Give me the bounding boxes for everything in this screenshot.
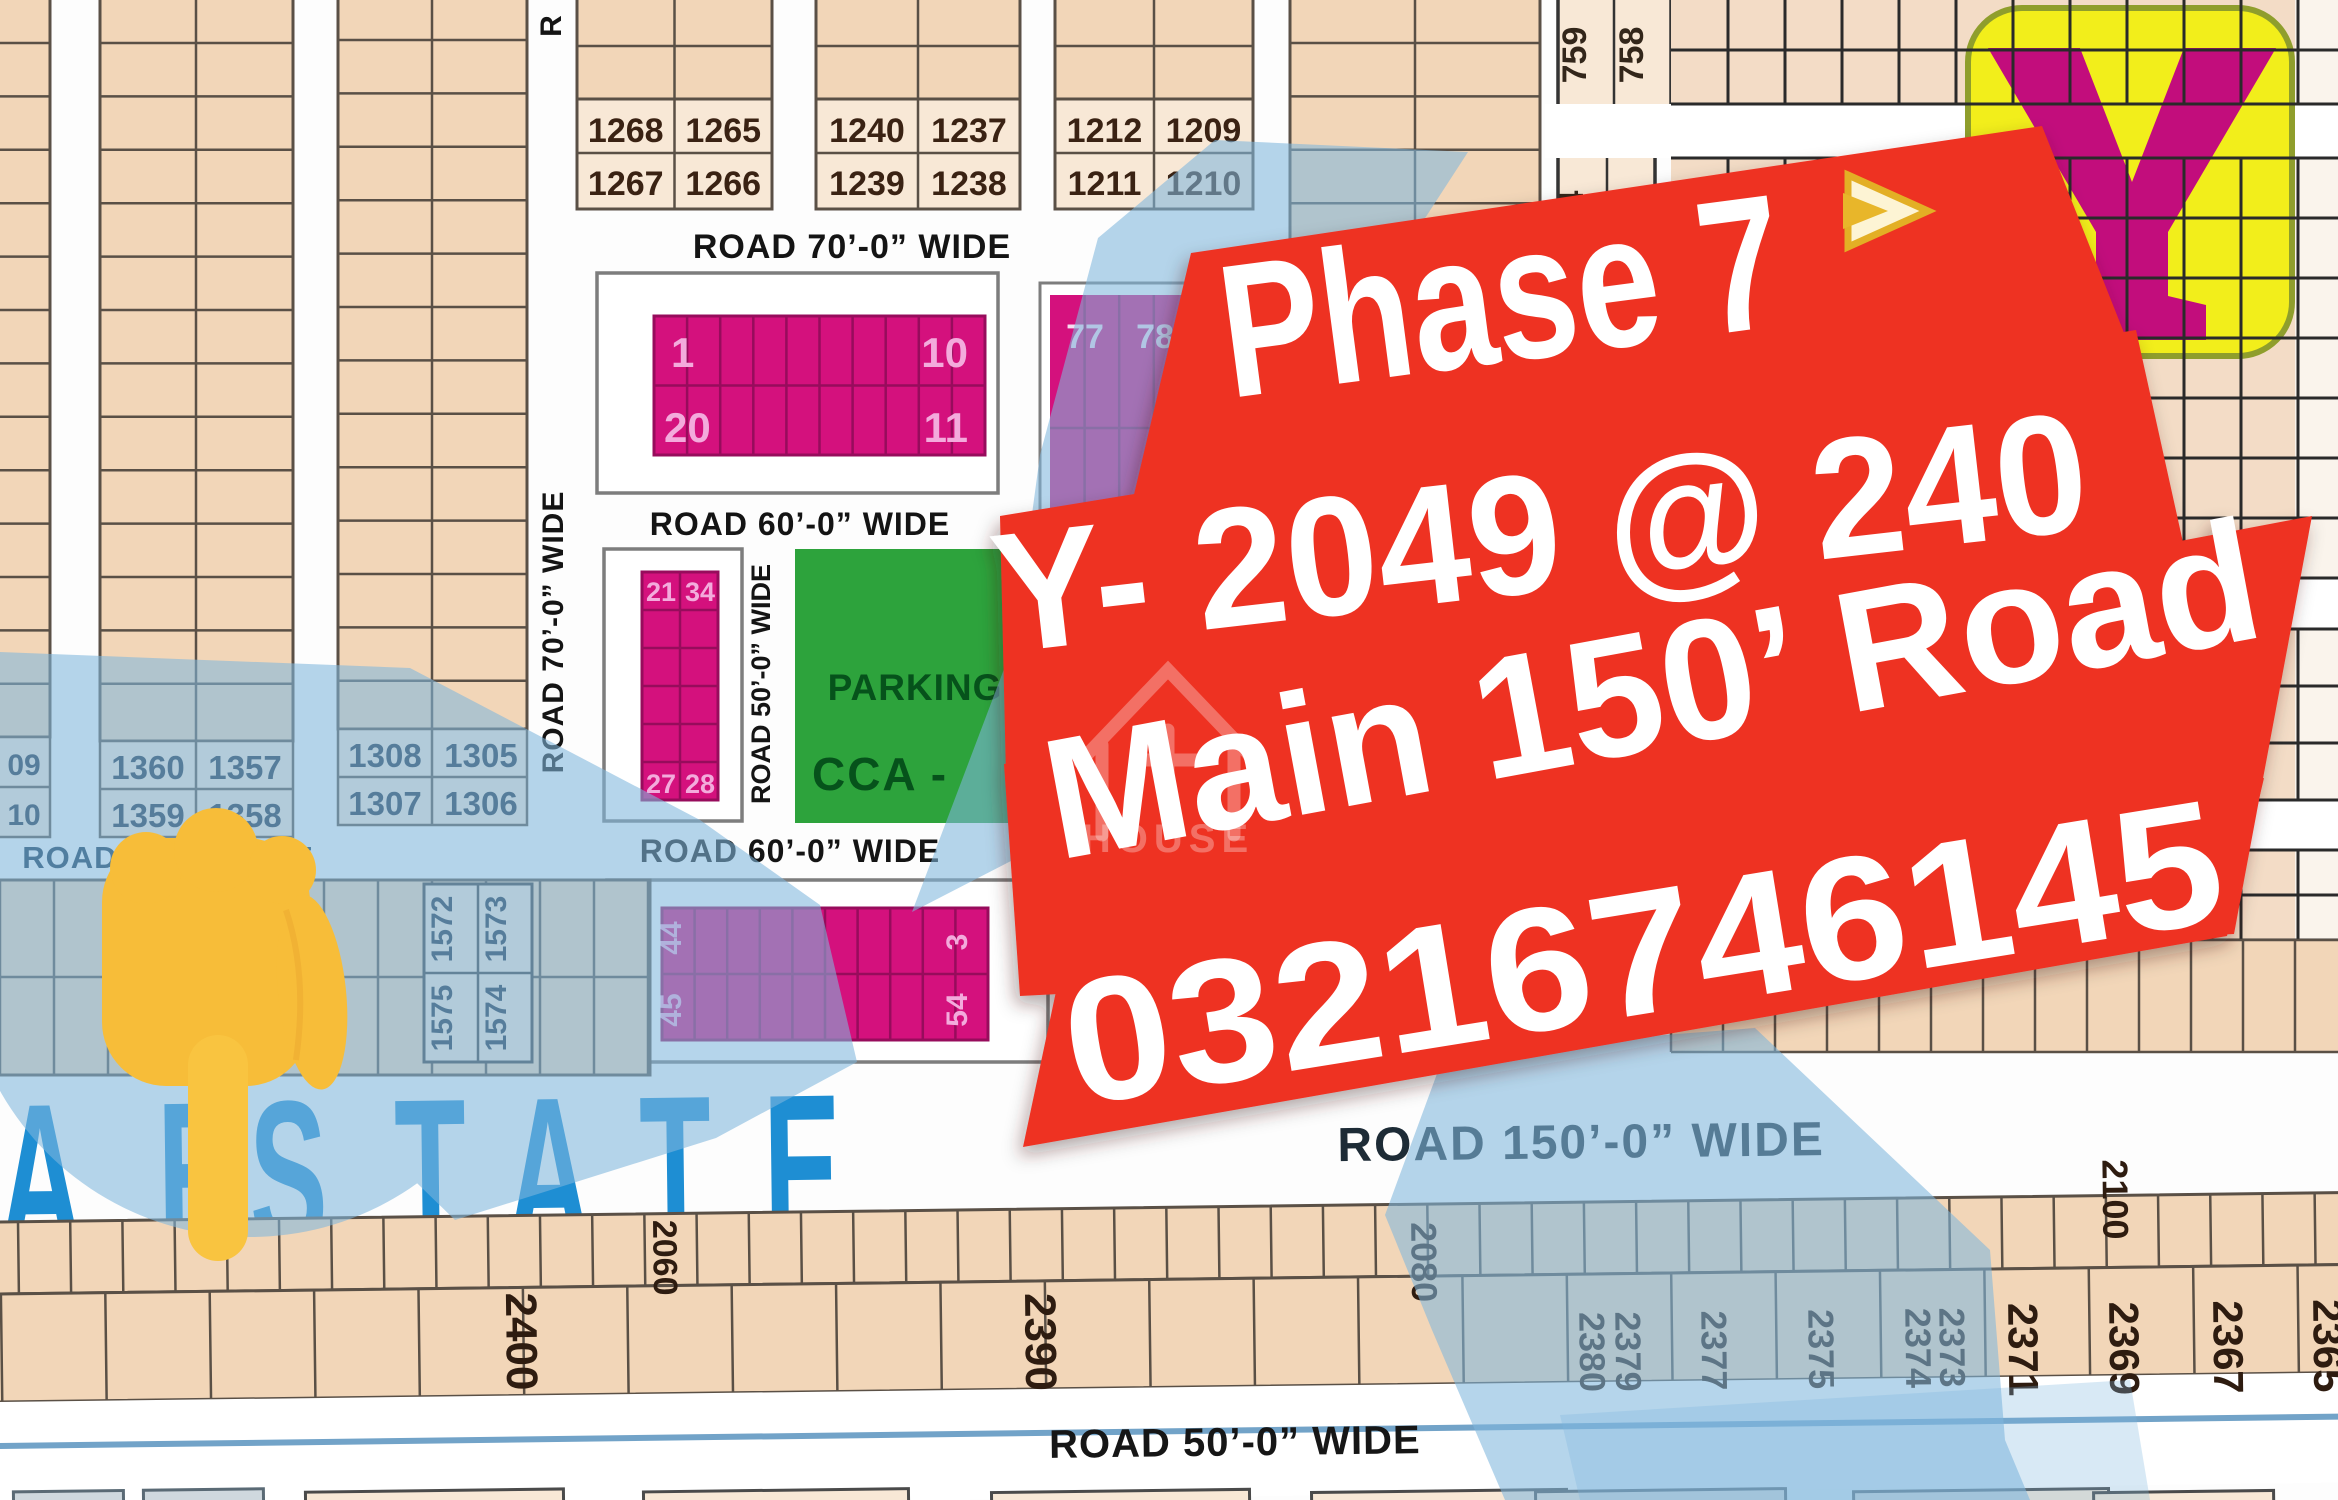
svg-text:2505: 2505 <box>1080 1495 1161 1500</box>
svg-text:ROAD 50’-0” WIDE: ROAD 50’-0” WIDE <box>746 564 776 804</box>
svg-text:54: 54 <box>941 993 974 1027</box>
svg-text:ROAD 60’-0” WIDE: ROAD 60’-0” WIDE <box>650 506 950 542</box>
svg-text:21: 21 <box>646 577 676 607</box>
svg-text:PARKING: PARKING <box>828 667 1003 708</box>
svg-text:1211: 1211 <box>1068 165 1142 203</box>
svg-text:2367: 2367 <box>2204 1300 2252 1394</box>
svg-text:1239: 1239 <box>829 165 905 203</box>
svg-text:8 6: 8 6 <box>2159 1496 2210 1500</box>
svg-text:1265: 1265 <box>685 112 761 150</box>
svg-text:34: 34 <box>685 577 715 607</box>
svg-text:3: 3 <box>941 934 974 951</box>
svg-text:HOUSE: HOUSE <box>1082 817 1254 861</box>
svg-text:1266: 1266 <box>685 165 761 203</box>
svg-text:1267: 1267 <box>588 165 664 203</box>
svg-text:2100: 2100 <box>2094 1159 2136 1240</box>
svg-text:758: 758 <box>1613 27 1651 84</box>
svg-text:1268: 1268 <box>588 112 664 150</box>
svg-text:1240: 1240 <box>829 112 905 150</box>
svg-text:ROAD 70’-0” WIDE: ROAD 70’-0” WIDE <box>693 228 1011 266</box>
svg-text:1237: 1237 <box>931 112 1007 150</box>
svg-text:11: 11 <box>924 404 968 451</box>
svg-text:1: 1 <box>671 329 694 376</box>
svg-text:2390: 2390 <box>1015 1293 1065 1391</box>
svg-text:R: R <box>535 15 568 37</box>
svg-text:CCA -: CCA - <box>812 748 948 800</box>
svg-text:759: 759 <box>1556 27 1594 84</box>
svg-text:1212: 1212 <box>1067 112 1143 150</box>
svg-text:ROAD 70’-0” WIDE: ROAD 70’-0” WIDE <box>537 491 570 774</box>
svg-text:2400: 2400 <box>496 1292 546 1390</box>
svg-text:1238: 1238 <box>931 165 1007 203</box>
svg-text:2503 2504: 2503 2504 <box>691 1494 862 1500</box>
svg-text:ROAD 50’-0” WIDE: ROAD 50’-0” WIDE <box>1049 1418 1421 1467</box>
svg-text:2060: 2060 <box>645 1220 684 1296</box>
svg-text:10: 10 <box>921 329 968 376</box>
svg-text:2371: 2371 <box>1999 1303 2047 1397</box>
svg-text:28: 28 <box>685 769 715 799</box>
svg-text:20: 20 <box>664 404 711 451</box>
svg-text:2365: 2365 <box>2304 1299 2338 1393</box>
